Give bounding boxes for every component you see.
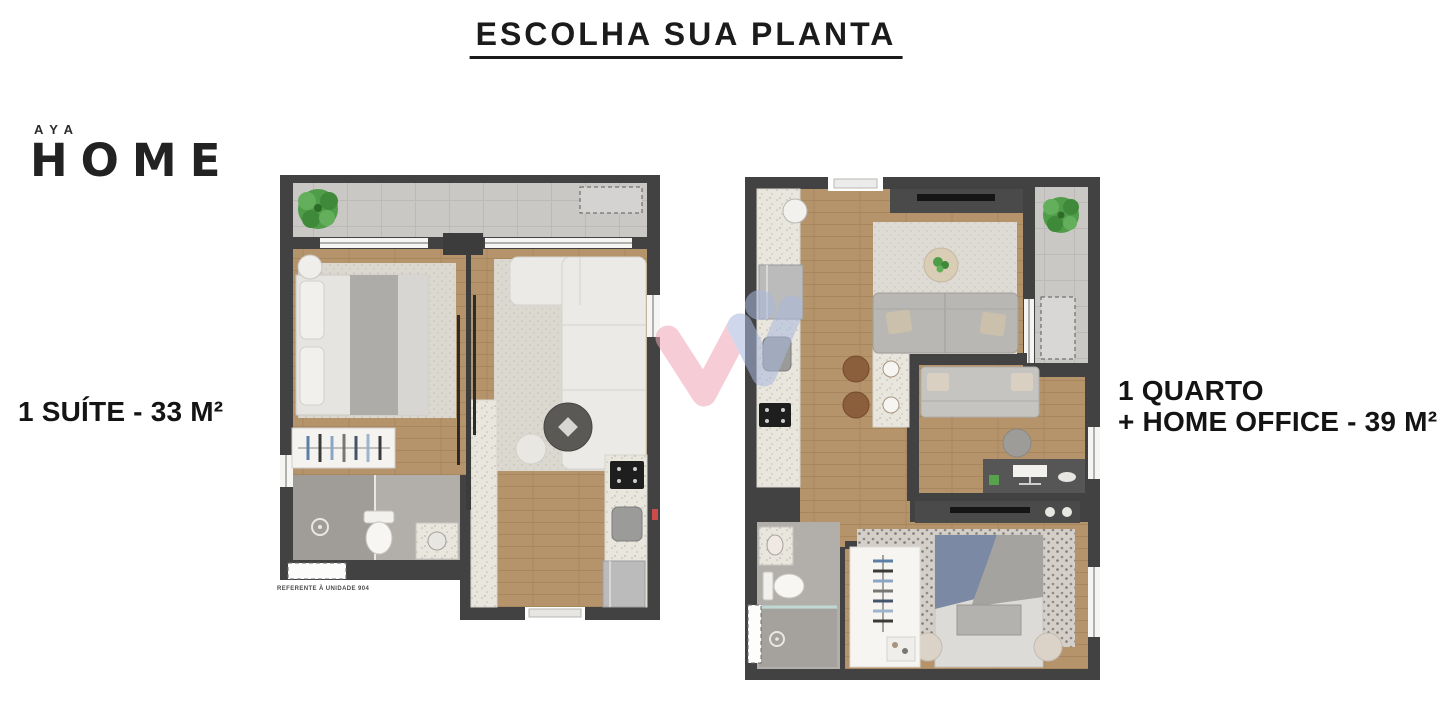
shaft-dashed-area xyxy=(748,605,761,663)
bathroom-vanity xyxy=(416,523,458,559)
kitchen-sink xyxy=(763,337,791,371)
monitor xyxy=(1013,465,1047,477)
sofa xyxy=(873,293,1018,353)
daybed xyxy=(921,367,1039,417)
toilet xyxy=(763,572,804,600)
tv xyxy=(917,194,995,201)
tv-wall xyxy=(890,189,1023,213)
plan-right-label: 1 QUARTO + HOME OFFICE - 39 M² xyxy=(1118,376,1437,438)
shower xyxy=(759,607,837,667)
floorplan-1-suite[interactable] xyxy=(280,175,660,620)
balcony xyxy=(1035,187,1088,367)
page: ESCOLHA SUA PLANTA AYA HOME 1 SUÍTE - 33… xyxy=(0,0,1442,703)
balcony xyxy=(293,183,647,237)
desk-plant xyxy=(989,475,999,485)
stool xyxy=(843,392,869,418)
ac-unit-dashed-area xyxy=(1041,297,1075,359)
refrigerator xyxy=(759,265,803,319)
office-chair xyxy=(1003,429,1031,457)
round-sink xyxy=(783,199,807,223)
desk xyxy=(983,459,1085,493)
bed xyxy=(296,275,428,415)
tv xyxy=(950,507,1030,513)
closet xyxy=(850,547,920,667)
entrance-door xyxy=(525,607,585,620)
ac-unit-dashed-area xyxy=(580,187,642,213)
plan-left-caption: REFERENTE À UNIDADE 904 xyxy=(277,586,369,592)
wardrobe xyxy=(292,428,395,468)
brand-logo-main-text: HOME xyxy=(30,138,233,183)
red-marker xyxy=(652,509,658,520)
bedside-table xyxy=(298,255,322,279)
entry-doormat xyxy=(288,563,346,579)
bed xyxy=(935,535,1043,667)
floorplan-1-quarto-home-office[interactable] xyxy=(745,177,1100,680)
bedroom-tv-console xyxy=(915,501,1080,523)
plan-right-label-line2: + HOME OFFICE - 39 M² xyxy=(1118,407,1437,438)
refrigerator xyxy=(603,561,645,607)
plant xyxy=(298,189,338,229)
pouf xyxy=(1034,633,1062,661)
bathroom xyxy=(757,522,840,669)
shower-area xyxy=(293,475,375,560)
plan-left-label: 1 SUÍTE - 33 M² xyxy=(18,396,223,428)
cooktop xyxy=(610,461,644,489)
kitchen xyxy=(757,189,807,487)
bathroom xyxy=(293,475,460,560)
stool xyxy=(843,356,869,382)
plan-right-label-line1: 1 QUARTO xyxy=(1118,376,1437,407)
entrance-door xyxy=(828,177,883,191)
pouf xyxy=(516,434,546,464)
kitchen-sink xyxy=(612,507,642,541)
toilet xyxy=(364,511,394,554)
living-room xyxy=(873,222,1018,354)
cooktop xyxy=(759,403,791,427)
plant xyxy=(1043,197,1079,233)
page-title: ESCOLHA SUA PLANTA xyxy=(470,16,903,59)
bed-bench xyxy=(957,605,1021,635)
brand-logo: AYA HOME xyxy=(30,122,233,183)
bathroom-vanity xyxy=(759,527,793,565)
